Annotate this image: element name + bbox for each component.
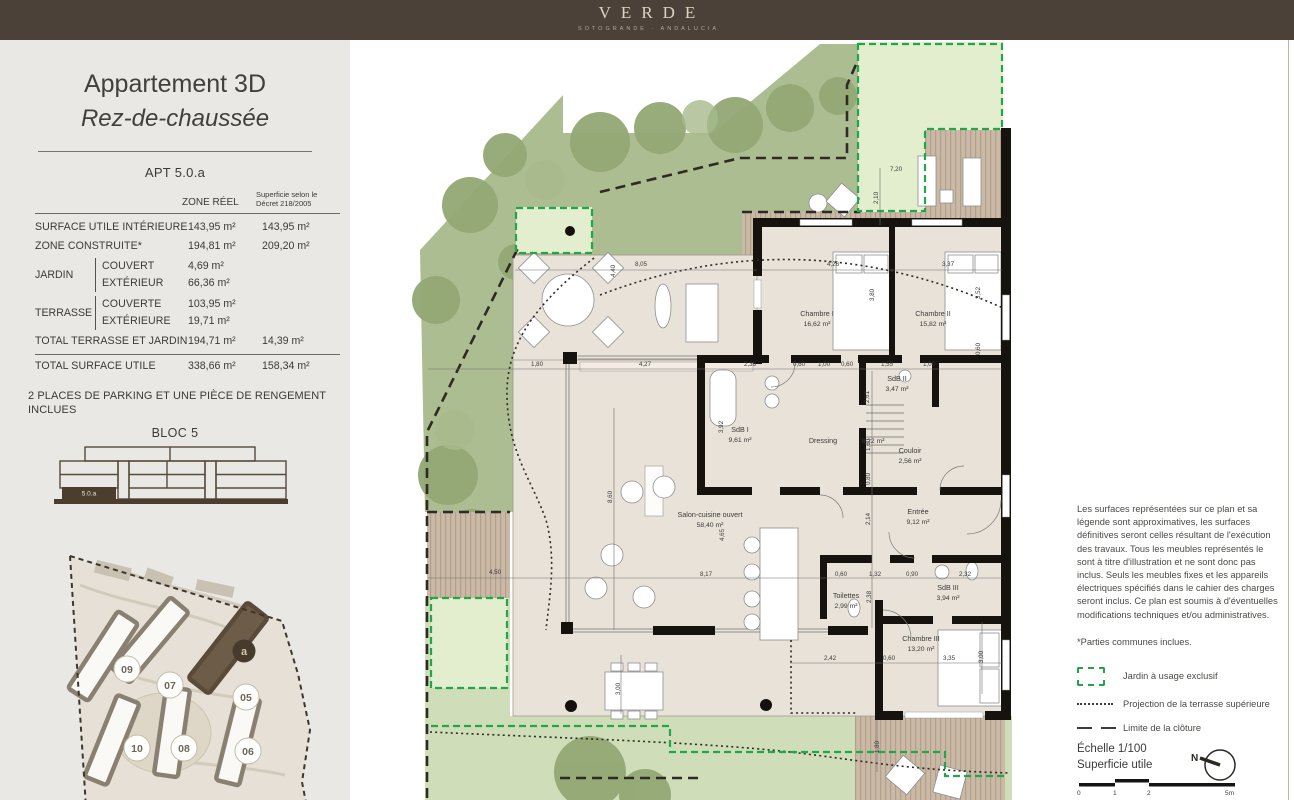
unit-label: 5.0.a (82, 491, 97, 498)
dim-label: 4,26 (827, 261, 840, 268)
room-area-label: 3,94 m² (936, 595, 960, 602)
room-name-label: Dressing (809, 436, 837, 445)
dim-label: 4,50 (489, 569, 502, 576)
dim-label: 3,37 (942, 261, 955, 268)
table-row-total: TOTAL SURFACE UTILE 338,66 m² 158,34 m² (35, 357, 340, 376)
page-subtitle: Rez-de-chaussée (0, 105, 350, 133)
svg-text:5m: 5m (1225, 790, 1234, 797)
table-row: ZONE CONSTRUITE* 194,81 m² 209,20 m² (35, 237, 340, 256)
brand-tagline: SOTOGRANDE · ANDALUCIA (0, 26, 1294, 32)
dim-label: 1,80 (531, 361, 544, 368)
scale-title: Échelle 1/100 (1077, 741, 1152, 757)
col-zone-reel: ZONE RÉEL (182, 197, 256, 209)
room-name-label: Chambre III (902, 634, 940, 643)
dim-label: 1,55 (881, 361, 894, 368)
dim-label: 0,60 (883, 655, 896, 662)
room-name-label: Couloir (899, 446, 922, 455)
badge-05: 05 (240, 692, 252, 704)
dim-label: 3,52 (975, 286, 982, 299)
room-area-label: 3,47 m² (885, 386, 909, 393)
room-name-label: Salon-cuisine ouvert (677, 510, 742, 519)
room-name-label: Toilettes (833, 591, 860, 600)
legend: Jardin à usage exclusif Projection de la… (1077, 667, 1279, 734)
dim-label: 3,00 (615, 682, 622, 695)
dim-label: 1,80 (874, 740, 881, 753)
table-group-terrasse: TERRASSE COUVERTE 103,95 m² EXTÉRIEURE 1… (35, 294, 340, 332)
room-area-label: 2,99 m² (834, 603, 858, 610)
legend-item-projection: Projection de la terrasse supérieure (1077, 698, 1279, 710)
svg-text:a: a (241, 646, 248, 658)
header-bar: VERDE SOTOGRANDE · ANDALUCIA (0, 0, 1294, 40)
info-panel: Appartement 3D Rez-de-chaussée APT 5.0.a… (0, 40, 350, 800)
dim-label: 8,05 (635, 261, 648, 268)
dim-label: 4,40 (610, 264, 617, 277)
room-area-label: 15,82 m² (920, 321, 948, 328)
dim-label: 0,60 (835, 571, 848, 578)
divider (35, 354, 340, 355)
room-area-label: 2,56 m² (898, 458, 922, 465)
dim-label: 0,90 (906, 571, 919, 578)
disclaimer-text: Les surfaces représentées sur ce plan et… (1077, 503, 1279, 622)
dim-label: 8,60 (607, 490, 614, 503)
table-row: SURFACE UTILE INTÉRIEURE 143,95 m² 143,9… (35, 218, 340, 237)
legend-item-jardin: Jardin à usage exclusif (1077, 667, 1279, 686)
dim-label: 3,92 (718, 420, 725, 433)
room-name-label: SdB III (937, 583, 959, 592)
lounger (918, 156, 936, 206)
dim-label: 1,00 (923, 361, 936, 368)
dim-label: 2,14 (865, 512, 872, 525)
notes-column: Les surfaces représentées sur ce plan et… (1077, 503, 1279, 800)
dim-label: 3,00 (978, 650, 985, 663)
scale-subtitle: Superficie utile (1077, 757, 1152, 773)
surface-table: SURFACE UTILE INTÉRIEURE 143,95 m² 143,9… (35, 213, 340, 376)
dim-label: 8,17 (700, 571, 713, 578)
room-name-label: SdB I (731, 425, 749, 434)
room-area-label: 16,62 m² (804, 321, 832, 328)
common-areas-note: *Parties communes inclues. (1077, 637, 1279, 647)
legend-item-cloture: Limite de la clôture (1077, 722, 1279, 734)
jardin-patch-top-left (516, 207, 592, 253)
svg-text:1: 1 (1113, 790, 1117, 797)
room-area-label: 58,40 m² (697, 522, 725, 529)
table-row: TOTAL TERRASSE ET JARDIN 194,71 m² 14,39… (35, 332, 340, 351)
apartment-code: APT 5.0.a (0, 165, 350, 180)
divider (38, 151, 312, 152)
north-label: N (1191, 753, 1198, 764)
svg-text:2: 2 (1147, 790, 1151, 797)
badge-07: 07 (164, 680, 176, 692)
dim-label: 4,65 (719, 528, 726, 541)
dim-label: 2,61 (864, 390, 871, 403)
dim-label: 2,42 (824, 655, 837, 662)
bathtub (710, 370, 736, 426)
armchair (621, 481, 643, 503)
room-area-label: 13,20 m² (908, 646, 936, 653)
dim-label: 3,35 (943, 655, 956, 662)
dim-label: 2,36 (744, 361, 757, 368)
page-title: Appartement 3D (0, 70, 350, 99)
dim-label: 0,60 (975, 342, 982, 355)
badge-08: 08 (178, 743, 190, 755)
dim-label: 3,80 (869, 288, 876, 301)
dim-label: 1,00 (818, 361, 831, 368)
dim-label: 1,32 (869, 571, 882, 578)
room-name-label: Entrée (907, 507, 928, 516)
sofa (686, 284, 718, 342)
room-area-label: 9,61 m² (728, 437, 752, 444)
dim-label: 2,10 (873, 191, 880, 204)
dining-table (760, 528, 798, 640)
bloc-elevation-diagram: 5.0.a (50, 443, 300, 505)
col-decree: Superficie selon le Décret 218/2005 (256, 190, 336, 209)
dim-label: 0,60 (841, 361, 854, 368)
scale-bar: 0 1 2 5m (1077, 777, 1242, 797)
badge-09: 09 (121, 664, 133, 676)
dim-label: 2,38 (866, 590, 873, 603)
badge-10: 10 (131, 743, 143, 755)
dim-label: 0,60 (793, 361, 806, 368)
room-area-label: 9,12 m² (906, 519, 930, 526)
dim-label: 4,27 (639, 361, 652, 368)
outdoor-table (605, 672, 663, 710)
room-name-label: Chambre I (800, 309, 834, 318)
svg-text:0: 0 (1077, 790, 1081, 797)
parking-note: 2 PLACES DE PARKING ET UNE PIÈCE DE RENG… (28, 389, 332, 418)
badge-06: 06 (242, 746, 254, 758)
terrace-table (542, 274, 594, 326)
dim-label: 7,20 (890, 166, 903, 173)
jardin-patch-left (431, 598, 507, 688)
plan-sheet: VERDE SOTOGRANDE · ANDALUCIA Appartement… (0, 0, 1294, 800)
dim-label: 0,80 (865, 472, 872, 485)
room-name-label: Chambre II (915, 309, 951, 318)
room-name-label: SdB II (887, 374, 907, 383)
jardin-dashed-icon (1077, 667, 1105, 686)
dashed-line-icon (1077, 727, 1116, 729)
dotted-line-icon (1077, 703, 1113, 705)
bloc-title: BLOC 5 (0, 426, 350, 440)
sheet-edge-line (1288, 40, 1289, 800)
scale-block: Échelle 1/100 Superficie utile (1077, 741, 1152, 773)
brand-logo: VERDE (0, 0, 1294, 23)
site-plan: 09 07 05 10 08 06 a N (0, 545, 350, 800)
table-group-jardin: JARDIN COUVERT 4,69 m² EXTÉRIEUR 66,36 m… (35, 256, 340, 294)
dim-label: 1,60 (865, 438, 872, 451)
dim-label: 2,32 (959, 571, 972, 578)
table-column-headers: ZONE RÉEL Superficie selon le Décret 218… (35, 190, 336, 209)
